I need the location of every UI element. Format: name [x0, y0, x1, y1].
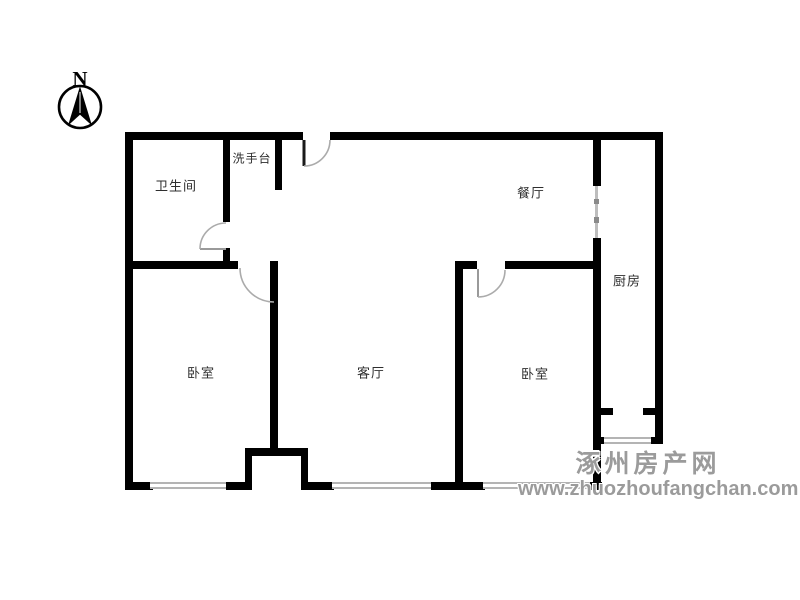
kitchen-window [604, 437, 651, 444]
bathroom-east-wall [223, 132, 230, 222]
room-label-living: 客厅 [357, 363, 385, 382]
room-label-bathroom: 卫生间 [155, 176, 197, 195]
room-label-bedroom-right: 卧室 [521, 364, 549, 383]
compass-needle-icon [69, 88, 91, 124]
kitchen-sill-stub-right [643, 408, 663, 415]
bedroom-left-top-wall [125, 261, 238, 269]
bedroom-right-door-arc [478, 270, 505, 297]
room-label-dining: 餐厅 [517, 183, 545, 202]
kitchen-sill-stub-left [593, 408, 613, 415]
living-room-window [332, 482, 433, 489]
compass-circle [59, 86, 101, 128]
room-label-bedroom-left: 卧室 [187, 363, 215, 382]
notch-top-wall [245, 448, 308, 456]
washbasin-right-wall [275, 140, 282, 190]
bedroom-left-door-arc [240, 268, 274, 302]
bottom-wall-seg-3 [301, 482, 334, 490]
kitchen-sliding-door [595, 186, 598, 238]
kitchen-left-wall-top [593, 140, 601, 186]
left-outer-wall [125, 132, 133, 490]
compass-north-letter: N [72, 67, 87, 91]
bottom-wall-seg-1 [125, 482, 153, 490]
right-outer-wall [655, 132, 663, 444]
doors-and-compass-layer: N [0, 0, 800, 600]
top-wall-right [330, 132, 663, 140]
room-label-kitchen: 厨房 [613, 271, 641, 290]
watermark-site-url: www.zhuozhoufangchan.com [518, 479, 778, 500]
watermark: 涿州房产网 www.zhuozhoufangchan.com [518, 451, 778, 500]
living-bedroom-left-divider [270, 261, 278, 448]
entrance-door-arc [304, 140, 330, 166]
floorplan-canvas: N 卫生间 洗手台 餐厅 厨房 卧室 客厅 卧室 涿州房产网 www.zhuoz… [0, 0, 800, 600]
top-wall-left [125, 132, 303, 140]
kitchen-sliding-door-tick-1 [594, 199, 599, 204]
watermark-site-name: 涿州房产网 [518, 451, 778, 477]
bedroom-right-top-wall-right [505, 261, 595, 269]
kitchen-sliding-door-tick-2 [594, 217, 599, 223]
room-label-washbasin: 洗手台 [232, 150, 271, 167]
bathroom-door-arc [200, 223, 226, 249]
living-bedroom-right-divider [455, 261, 463, 490]
bedroom-left-window [150, 482, 228, 489]
